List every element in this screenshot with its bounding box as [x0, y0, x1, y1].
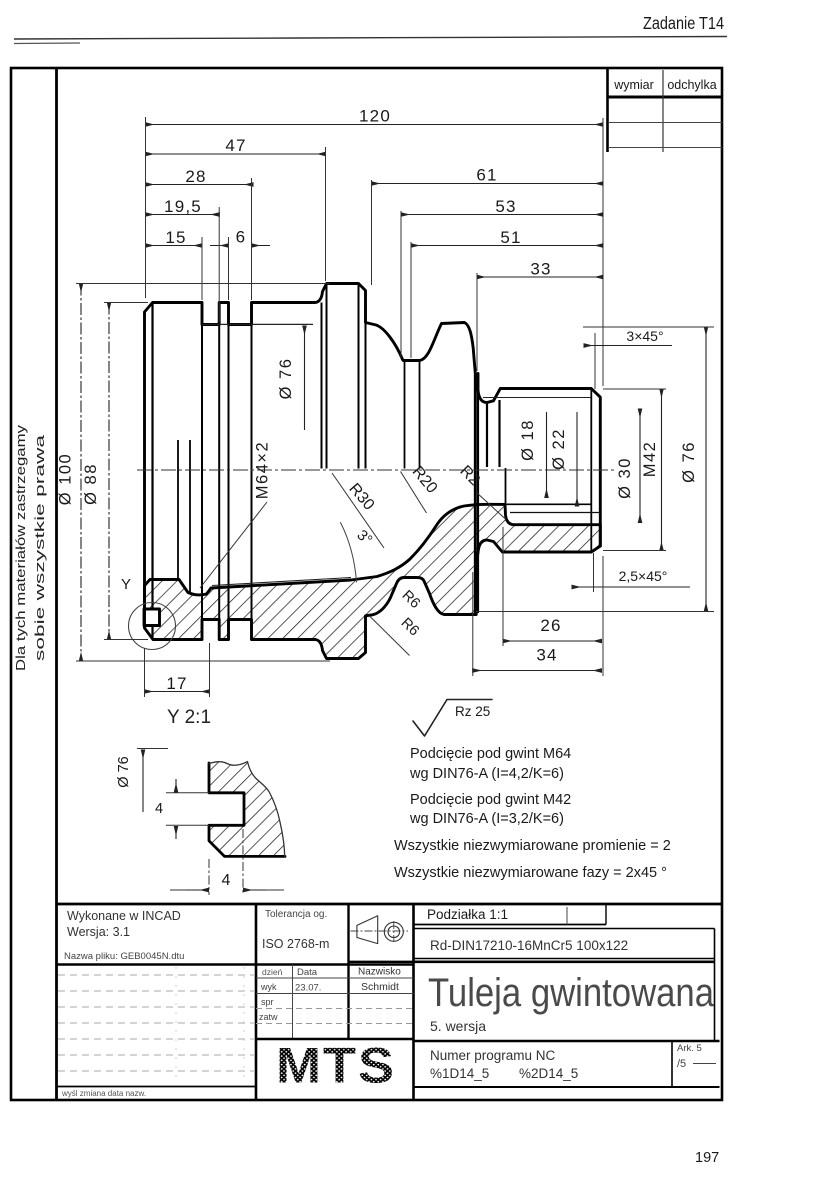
svg-text:wymiar: wymiar	[613, 78, 654, 92]
svg-text:sobie wszystkie prawa: sobie wszystkie prawa	[33, 435, 47, 661]
svg-text:Podcięcie pod gwint M64: Podcięcie pod gwint M64	[410, 746, 571, 762]
svg-text:zatw: zatw	[259, 1012, 278, 1022]
svg-text:Y 2:1: Y 2:1	[167, 707, 211, 728]
svg-text:Ark. 5: Ark. 5	[677, 1043, 702, 1054]
svg-text:120: 120	[359, 107, 391, 126]
svg-text:M42: M42	[641, 441, 659, 478]
svg-text:M64×2: M64×2	[254, 441, 272, 499]
svg-text:Nazwisko: Nazwisko	[358, 967, 401, 978]
svg-text:Tuleja gwintowana: Tuleja gwintowana	[428, 971, 715, 1015]
svg-text:wg DIN76-A (I=3,2/K=6): wg DIN76-A (I=3,2/K=6)	[409, 811, 564, 827]
svg-text:/5: /5	[677, 1058, 686, 1070]
svg-text:Ø 76: Ø 76	[116, 756, 132, 787]
svg-text:17: 17	[166, 674, 187, 693]
svg-text:Rz 25: Rz 25	[455, 704, 490, 719]
svg-text:28: 28	[185, 167, 206, 186]
svg-text:Nazwa pliku: GEB0045N.dtu: Nazwa pliku: GEB0045N.dtu	[64, 951, 184, 962]
svg-text:Wersja: 3.1: Wersja: 3.1	[67, 925, 130, 939]
svg-text:4: 4	[222, 872, 231, 889]
svg-text:4: 4	[155, 801, 163, 817]
svg-text:Ø 30: Ø 30	[616, 457, 634, 499]
svg-text:Tolerancja og.: Tolerancja og.	[265, 909, 327, 920]
svg-text:Data: Data	[297, 967, 318, 978]
svg-text:spr: spr	[261, 997, 274, 1007]
svg-text:5. wersja: 5. wersja	[430, 1018, 486, 1034]
svg-text:61: 61	[476, 166, 497, 185]
svg-text:Ø 22: Ø 22	[550, 428, 568, 470]
svg-text:Schmidt: Schmidt	[361, 981, 399, 993]
svg-text:wyk: wyk	[260, 982, 277, 992]
svg-text:Podziałka 1:1: Podziałka 1:1	[427, 907, 508, 922]
svg-text:23.07.: 23.07.	[295, 983, 321, 994]
svg-text:6: 6	[236, 228, 247, 247]
svg-text:wg DIN76-A (I=4,2/K=6): wg DIN76-A (I=4,2/K=6)	[409, 766, 564, 782]
svg-text:51: 51	[500, 228, 521, 247]
svg-text:MTS: MTS	[276, 1038, 396, 1094]
svg-text:Wykonane w INCAD: Wykonane w INCAD	[67, 909, 181, 923]
svg-text:47: 47	[225, 136, 246, 155]
svg-text:ISO 2768-m: ISO 2768-m	[262, 937, 329, 951]
svg-text:Wszystkie niezwymiarowane fazy: Wszystkie niezwymiarowane fazy = 2x45 °	[394, 865, 667, 881]
svg-text:Dla tych materiałów zastrzegam: Dla tych materiałów zastrzegamy	[14, 424, 28, 671]
svg-text:15: 15	[165, 228, 186, 247]
svg-text:34: 34	[536, 646, 557, 665]
svg-text:Rd-DIN17210-16MnCr5 100x122: Rd-DIN17210-16MnCr5 100x122	[430, 938, 628, 953]
svg-text:Ø 100: Ø 100	[57, 453, 75, 505]
svg-text:%1D14_5: %1D14_5	[430, 1066, 489, 1081]
svg-text:53: 53	[495, 197, 516, 216]
svg-text:dzień: dzień	[262, 967, 283, 977]
svg-text:197: 197	[695, 1150, 719, 1166]
svg-text:Y: Y	[121, 576, 131, 593]
svg-text:3×45°: 3×45°	[626, 328, 663, 344]
svg-text:Wszystkie niezwymiarowane prom: Wszystkie niezwymiarowane promienie = 2	[394, 838, 671, 854]
svg-text:%2D14_5: %2D14_5	[519, 1066, 578, 1081]
svg-text:Ø 76: Ø 76	[680, 441, 698, 483]
svg-text:Ø 76: Ø 76	[277, 358, 295, 400]
svg-text:19,5: 19,5	[164, 197, 202, 216]
svg-text:Podcięcie pod gwint M42: Podcięcie pod gwint M42	[410, 792, 571, 808]
svg-text:Ø 88: Ø 88	[82, 463, 100, 505]
svg-text:26: 26	[540, 616, 561, 635]
svg-text:Ø 18: Ø 18	[519, 419, 537, 461]
svg-text:wyśl zmiana data: wyśl zmiana data nazw.	[61, 1089, 146, 1098]
svg-text:33: 33	[530, 260, 551, 279]
svg-text:Numer programu NC: Numer programu NC	[430, 1048, 556, 1063]
svg-text:2,5×45°: 2,5×45°	[619, 568, 668, 584]
svg-text:Zadanie T14: Zadanie T14	[643, 13, 724, 33]
svg-text:odchylka: odchylka	[667, 78, 716, 92]
